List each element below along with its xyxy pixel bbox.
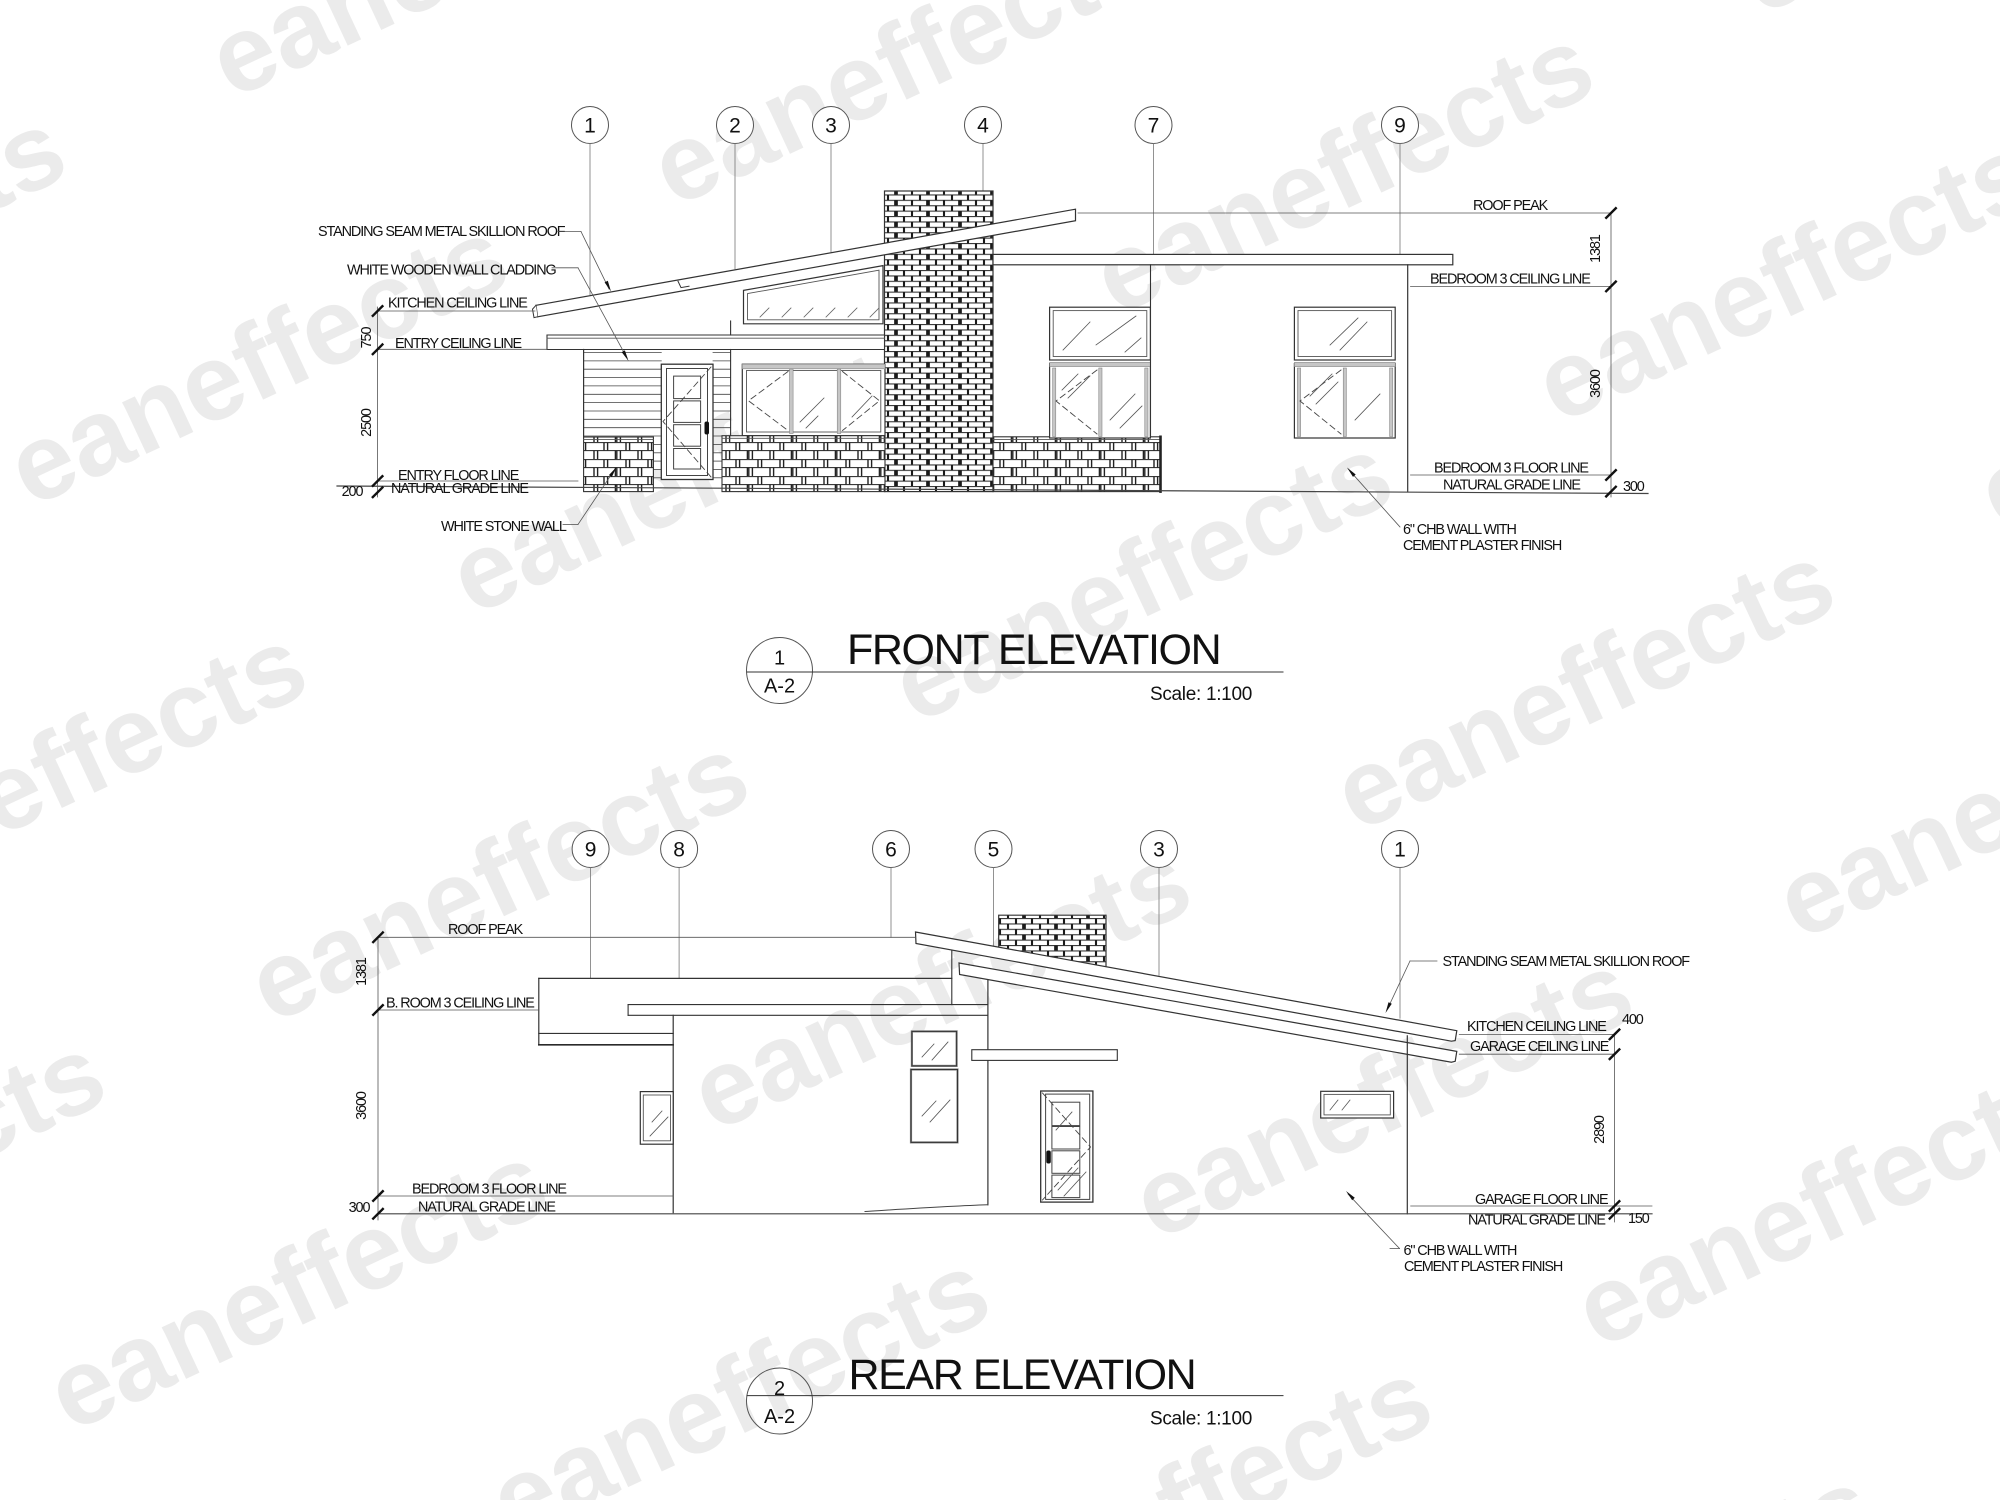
svg-text:8: 8 <box>673 839 685 862</box>
svg-text:ROOF PEAK: ROOF PEAK <box>448 922 524 938</box>
svg-text:BEDROOM 3 FLOOR LINE: BEDROOM 3 FLOOR LINE <box>412 1182 566 1198</box>
svg-text:CEMENT PLASTER FINISH: CEMENT PLASTER FINISH <box>1404 1259 1563 1275</box>
svg-text:1: 1 <box>774 648 785 670</box>
svg-text:ENTRY CEILING LINE: ENTRY CEILING LINE <box>395 336 522 352</box>
svg-text:7: 7 <box>1148 115 1160 138</box>
svg-text:A-2: A-2 <box>764 676 795 698</box>
svg-text:2: 2 <box>774 1378 785 1400</box>
svg-text:1: 1 <box>1394 839 1406 862</box>
svg-text:200: 200 <box>342 484 364 500</box>
svg-text:B. ROOM 3 CEILING LINE: B. ROOM 3 CEILING LINE <box>386 996 534 1012</box>
svg-text:Scale: 1:100: Scale: 1:100 <box>1150 1409 1252 1430</box>
svg-text:ROOF PEAK: ROOF PEAK <box>1473 198 1549 214</box>
svg-text:1381: 1381 <box>1588 234 1604 263</box>
svg-text:CEMENT PLASTER FINISH: CEMENT PLASTER FINISH <box>1403 538 1562 554</box>
svg-text:3: 3 <box>1153 839 1165 862</box>
svg-text:3: 3 <box>825 115 837 138</box>
svg-text:FRONT ELEVATION: FRONT ELEVATION <box>847 626 1220 674</box>
svg-text:GARAGE FLOOR LINE: GARAGE FLOOR LINE <box>1475 1192 1608 1208</box>
svg-text:A-2: A-2 <box>764 1406 795 1428</box>
svg-text:9: 9 <box>1394 115 1406 138</box>
svg-text:REAR ELEVATION: REAR ELEVATION <box>849 1351 1196 1399</box>
svg-text:1: 1 <box>584 115 596 138</box>
svg-text:WHITE STONE WALL: WHITE STONE WALL <box>441 519 567 535</box>
svg-text:5: 5 <box>988 839 1000 862</box>
svg-text:WHITE WOODEN WALL CLADDING: WHITE WOODEN WALL CLADDING <box>347 263 556 279</box>
svg-text:6" CHB WALL WITH: 6" CHB WALL WITH <box>1404 1243 1517 1259</box>
svg-text:STANDING SEAM METAL SKILLION R: STANDING SEAM METAL SKILLION ROOF <box>318 224 566 240</box>
svg-text:2500: 2500 <box>359 408 375 437</box>
svg-text:NATURAL GRADE LINE: NATURAL GRADE LINE <box>1443 477 1580 493</box>
svg-text:NATURAL GRADE LINE: NATURAL GRADE LINE <box>1468 1213 1605 1229</box>
svg-text:BEDROOM 3 CEILING LINE: BEDROOM 3 CEILING LINE <box>1430 272 1590 288</box>
svg-text:6: 6 <box>885 839 897 862</box>
svg-text:NATURAL GRADE LINE: NATURAL GRADE LINE <box>391 481 528 497</box>
svg-text:6" CHB WALL WITH: 6" CHB WALL WITH <box>1403 522 1516 538</box>
svg-text:KITCHEN CEILING LINE: KITCHEN CEILING LINE <box>1467 1019 1606 1035</box>
svg-text:2: 2 <box>729 115 741 138</box>
svg-text:2890: 2890 <box>1592 1115 1608 1144</box>
svg-text:9: 9 <box>585 839 597 862</box>
svg-text:300: 300 <box>349 1200 371 1216</box>
svg-text:KITCHEN CEILING LINE: KITCHEN CEILING LINE <box>388 296 527 312</box>
svg-text:750: 750 <box>359 327 375 349</box>
svg-text:STANDING SEAM METAL SKILLION R: STANDING SEAM METAL SKILLION ROOF <box>1443 954 1691 970</box>
svg-text:3600: 3600 <box>1588 369 1604 398</box>
svg-text:4: 4 <box>977 115 989 138</box>
svg-text:Scale: 1:100: Scale: 1:100 <box>1150 684 1252 705</box>
svg-text:1381: 1381 <box>354 957 370 986</box>
svg-text:3600: 3600 <box>354 1091 370 1120</box>
svg-text:150: 150 <box>1628 1211 1650 1227</box>
svg-text:NATURAL GRADE LINE: NATURAL GRADE LINE <box>418 1200 555 1216</box>
svg-text:400: 400 <box>1622 1012 1644 1028</box>
svg-text:BEDROOM 3 FLOOR LINE: BEDROOM 3 FLOOR LINE <box>1434 461 1588 477</box>
svg-text:300: 300 <box>1623 479 1645 495</box>
svg-text:GARAGE CEILING LINE: GARAGE CEILING LINE <box>1470 1039 1609 1055</box>
